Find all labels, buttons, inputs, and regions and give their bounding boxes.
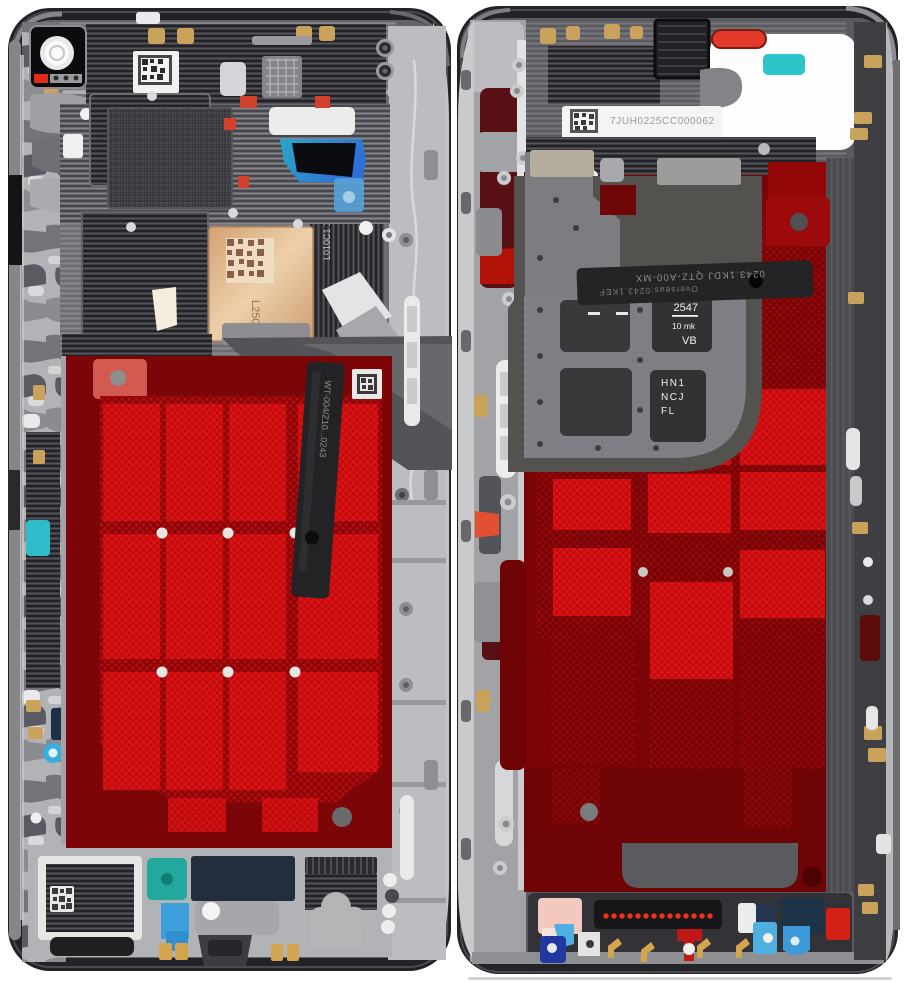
svg-text:7JUH0225CC000062: 7JUH0225CC000062: [610, 116, 715, 127]
svg-text:2547: 2547: [674, 302, 698, 314]
svg-text:10 mk: 10 mk: [672, 321, 696, 331]
svg-text:L250: L250: [249, 300, 261, 324]
svg-text:NCJ: NCJ: [661, 392, 685, 403]
svg-text:VB: VB: [682, 335, 697, 347]
svg-text:FL: FL: [661, 406, 676, 417]
svg-text:HN1: HN1: [661, 378, 686, 389]
